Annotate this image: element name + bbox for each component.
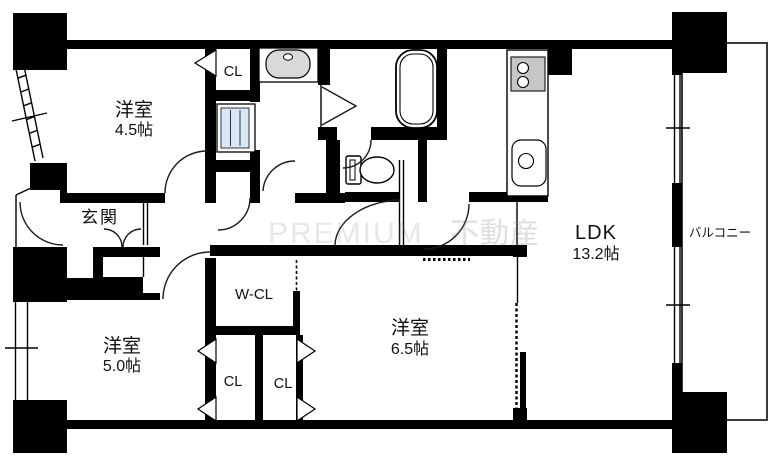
wall-kitchen-chunk (548, 48, 572, 75)
wall-wcl-east (293, 291, 300, 335)
balcony-label: バルコニー (689, 226, 751, 240)
wall-wcl-south (205, 326, 300, 335)
watermark: PREMIUM 不動産 (268, 217, 540, 250)
washbasin-icon (259, 48, 318, 82)
floorplan-svg: 洋室 4.5帖 洋室 5.0帖 洋室 6.5帖 LDK 13.2帖 玄関 W-C… (0, 0, 782, 467)
stove-icon (511, 57, 545, 91)
ldk-size: 13.2帖 (572, 245, 619, 263)
wall-top (13, 40, 673, 49)
wall-wcl-west (205, 258, 216, 335)
floorplan-page: 洋室 4.5帖 洋室 5.0帖 洋室 6.5帖 LDK 13.2帖 玄関 W-C… (0, 0, 782, 467)
wall-under-closet-top (211, 90, 251, 101)
wall-bath-west (318, 48, 330, 85)
wall-toilet-east-stub (418, 137, 427, 202)
bedroom50-label: 洋室 (103, 335, 141, 357)
wall-closet-divider (255, 335, 263, 420)
entrance-label: 玄関 (81, 208, 119, 227)
wall-left-corner (30, 163, 67, 190)
wall-bedroom50-north-stub (143, 293, 160, 300)
partition-sliding-leaf (520, 352, 526, 410)
pillar-bottom-right (672, 392, 727, 453)
wall-bath-south-b (371, 127, 447, 140)
watermark-latin: PREMIUM (268, 217, 424, 250)
walkin-closet-label: W-CL (235, 286, 273, 303)
pillar-bottom-left (13, 400, 67, 453)
bedroom45-label: 洋室 (115, 99, 153, 121)
pillar-top-right (672, 12, 727, 73)
bedroom45-size: 4.5帖 (115, 121, 153, 139)
wall-corridor-north-west (60, 193, 165, 203)
pillar-top-left (13, 13, 67, 70)
wall-bedroom50-north (67, 278, 143, 300)
wall-corridor-north-mid (295, 193, 345, 203)
closet-right-label: CL (274, 376, 293, 392)
wall-balcony-c (672, 363, 682, 394)
washing-machine-icon (217, 104, 255, 152)
closet-left-label: CL (224, 374, 243, 390)
bedroom65-label: 洋室 (391, 317, 429, 339)
wall-washroom-west-lower (250, 150, 260, 203)
bedroom50-size: 5.0帖 (103, 357, 141, 375)
wall-bath-east (437, 48, 447, 133)
wall-balcony-b (672, 183, 682, 247)
toilet-icon (346, 156, 394, 184)
pillar-mid-left (13, 247, 67, 302)
watermark-kanji: 不動産 (450, 217, 540, 250)
kitchen-sink-icon (512, 140, 546, 186)
ldk-label: LDK (575, 222, 617, 244)
wall-corridor-south-west (93, 247, 160, 257)
wall-bottom (13, 420, 727, 429)
partition-post-bottom (513, 408, 527, 420)
bathtub-icon (396, 50, 437, 128)
closet-top-label: CL (224, 64, 243, 80)
wall-bath-south-a (318, 127, 337, 140)
bedroom65-size: 6.5帖 (391, 340, 429, 358)
